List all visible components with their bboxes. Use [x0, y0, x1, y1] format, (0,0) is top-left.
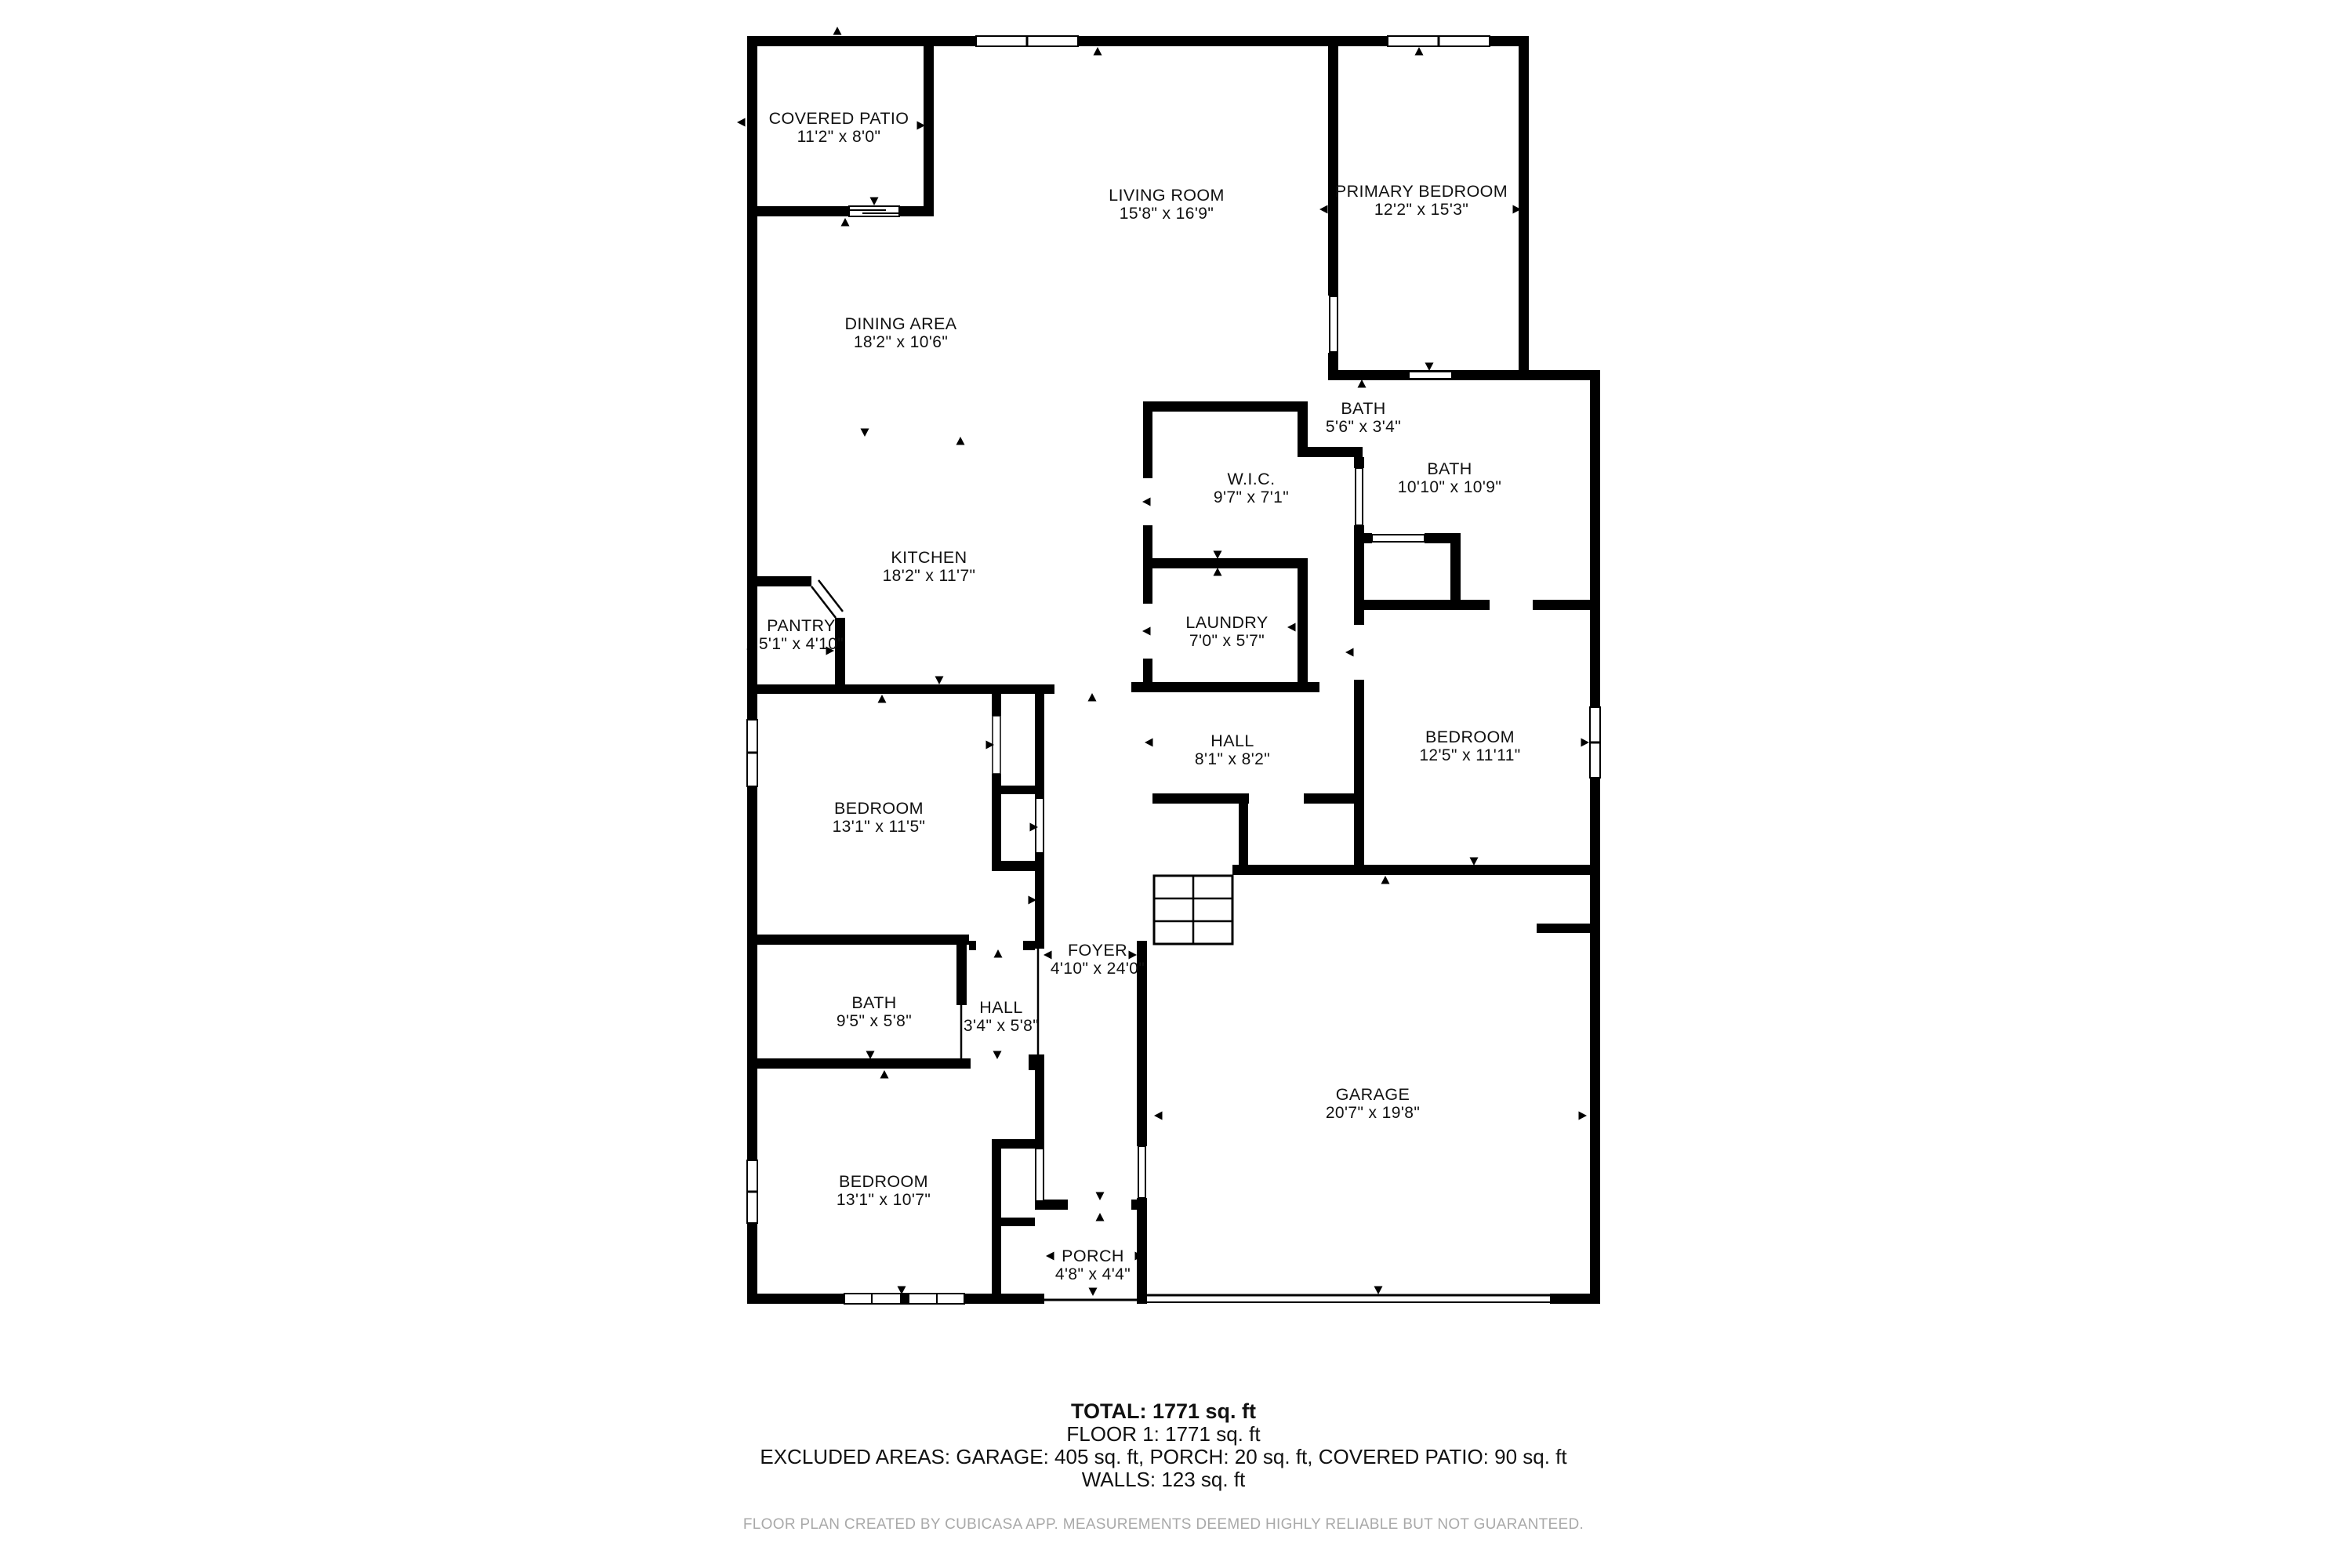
room-label-garage: GARAGE 20'7" x 19'8" — [1326, 1085, 1420, 1123]
room-dims: 4'10" x 24'0" — [1051, 960, 1145, 978]
room-dims: 9'5" x 5'8" — [837, 1012, 912, 1031]
room-dims: 7'0" x 5'7" — [1185, 632, 1268, 651]
room-name: PRIMARY BEDROOM — [1335, 182, 1508, 201]
room-name: LIVING ROOM — [1109, 186, 1225, 205]
room-dims: 5'6" x 3'4" — [1326, 418, 1401, 437]
room-label-covered-patio: COVERED PATIO 11'2" x 8'0" — [769, 109, 909, 147]
floor-plan-walls — [0, 0, 2352, 1568]
room-label-bath-hall: BATH 9'5" x 5'8" — [837, 993, 912, 1031]
room-name: PORCH — [1055, 1247, 1131, 1265]
room-dims: 20'7" x 19'8" — [1326, 1104, 1420, 1123]
room-dims: 3'4" x 5'8" — [964, 1017, 1039, 1036]
room-name: BEDROOM — [833, 799, 926, 818]
room-dims: 13'1" x 10'7" — [837, 1191, 931, 1210]
room-dims: 5'1" x 4'10" — [759, 635, 844, 654]
room-name: BEDROOM — [837, 1172, 931, 1191]
room-label-hall-small: HALL 3'4" x 5'8" — [964, 998, 1039, 1036]
room-dims: 11'2" x 8'0" — [769, 128, 909, 147]
room-label-bedroom-east: BEDROOM 12'5" x 11'11" — [1419, 728, 1520, 765]
room-dims: 8'1" x 8'2" — [1195, 750, 1270, 769]
room-dims: 12'2" x 15'3" — [1335, 201, 1508, 220]
room-name: BATH — [1326, 399, 1401, 418]
room-label-bedroom-northwest: BEDROOM 13'1" x 11'5" — [833, 799, 926, 837]
stairs — [1154, 876, 1232, 944]
windows-and-doors — [747, 36, 1600, 1304]
room-dims: 9'7" x 7'1" — [1214, 488, 1289, 507]
room-label-pantry: PANTRY 5'1" x 4'10" — [759, 616, 844, 654]
room-label-foyer: FOYER 4'10" x 24'0" — [1051, 941, 1145, 978]
room-dims: 10'10" x 10'9" — [1398, 478, 1501, 497]
floor-plan-canvas: COVERED PATIO 11'2" x 8'0" LIVING ROOM 1… — [0, 0, 2352, 1568]
room-dims: 18'2" x 10'6" — [845, 333, 957, 352]
summary-total: TOTAL: 1771 sq. ft — [760, 1400, 1566, 1423]
room-name: FOYER — [1051, 941, 1145, 960]
room-label-porch: PORCH 4'8" x 4'4" — [1055, 1247, 1131, 1284]
room-dims: 12'5" x 11'11" — [1419, 746, 1520, 765]
room-name: HALL — [1195, 731, 1270, 750]
room-name: DINING AREA — [845, 314, 957, 333]
summary-walls: WALLS: 123 sq. ft — [760, 1468, 1566, 1491]
room-label-laundry: LAUNDRY 7'0" x 5'7" — [1185, 613, 1268, 651]
room-name: GARAGE — [1326, 1085, 1420, 1104]
room-name: BATH — [837, 993, 912, 1012]
room-label-dining-area: DINING AREA 18'2" x 10'6" — [845, 314, 957, 352]
room-name: BEDROOM — [1419, 728, 1520, 746]
room-dims: 15'8" x 16'9" — [1109, 205, 1225, 223]
room-name: W.I.C. — [1214, 470, 1289, 488]
room-name: KITCHEN — [883, 548, 976, 567]
room-name: COVERED PATIO — [769, 109, 909, 128]
room-label-living-room: LIVING ROOM 15'8" x 16'9" — [1109, 186, 1225, 223]
room-name: PANTRY — [759, 616, 844, 635]
summary-floor1: FLOOR 1: 1771 sq. ft — [760, 1423, 1566, 1446]
room-dims: 18'2" x 11'7" — [883, 567, 976, 586]
room-name: HALL — [964, 998, 1039, 1017]
room-name: LAUNDRY — [1185, 613, 1268, 632]
disclaimer-text: FLOOR PLAN CREATED BY CUBICASA APP. MEAS… — [743, 1516, 1584, 1534]
wall-segments — [747, 36, 1600, 1304]
area-summary: TOTAL: 1771 sq. ft FLOOR 1: 1771 sq. ft … — [760, 1400, 1566, 1491]
room-label-primary-bedroom: PRIMARY BEDROOM 12'2" x 15'3" — [1335, 182, 1508, 220]
room-label-bath-primary: BATH 10'10" x 10'9" — [1398, 459, 1501, 497]
room-label-bath-small: BATH 5'6" x 3'4" — [1326, 399, 1401, 437]
room-label-hall-main: HALL 8'1" x 8'2" — [1195, 731, 1270, 769]
room-dims: 4'8" x 4'4" — [1055, 1265, 1131, 1284]
room-label-wic: W.I.C. 9'7" x 7'1" — [1214, 470, 1289, 507]
room-dims: 13'1" x 11'5" — [833, 818, 926, 837]
room-name: BATH — [1398, 459, 1501, 478]
room-label-bedroom-southwest: BEDROOM 13'1" x 10'7" — [837, 1172, 931, 1210]
room-label-kitchen: KITCHEN 18'2" x 11'7" — [883, 548, 976, 586]
summary-excluded: EXCLUDED AREAS: GARAGE: 405 sq. ft, PORC… — [760, 1446, 1566, 1468]
